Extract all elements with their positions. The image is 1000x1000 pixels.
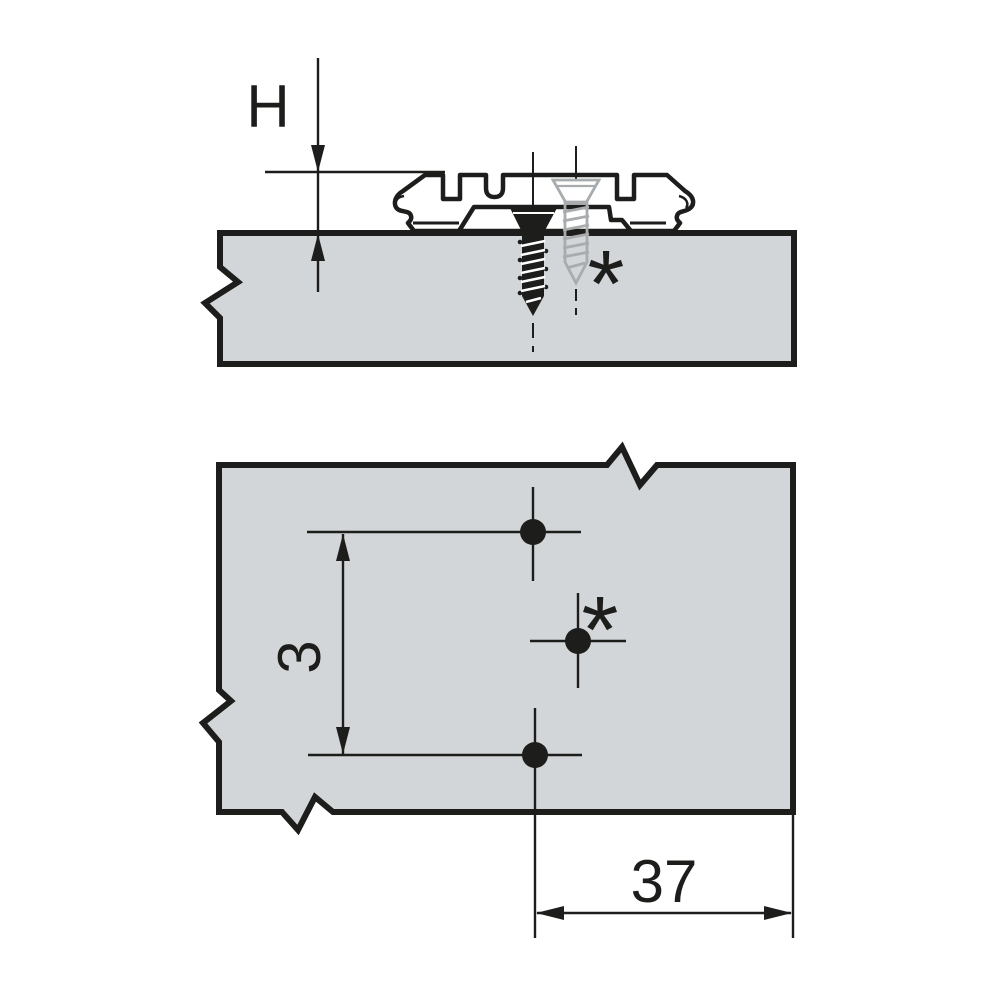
panel-cross-section [205,233,794,364]
h-dimension-arrow-down [311,145,325,172]
side-view: H * [205,58,794,364]
alternative-screw-marker: * [588,231,625,337]
edge-distance-dimension: 37 [536,815,793,938]
edge-distance-dimension-label: 37 [631,848,698,915]
plan-view: * 3 37 [203,447,793,938]
alternative-hole-marker: * [582,577,619,683]
edge-distance-arrow-left [536,906,564,920]
spacing-dimension-label: 3 [266,640,333,673]
h-dimension-label: H [246,73,289,140]
hinge-plate-mounting-diagram: H * * 3 [0,0,1000,1000]
panel-top-view [203,447,793,830]
edge-distance-arrow-right [764,906,792,920]
hole-bottom-center [522,742,548,768]
hole-top-center [520,519,546,545]
